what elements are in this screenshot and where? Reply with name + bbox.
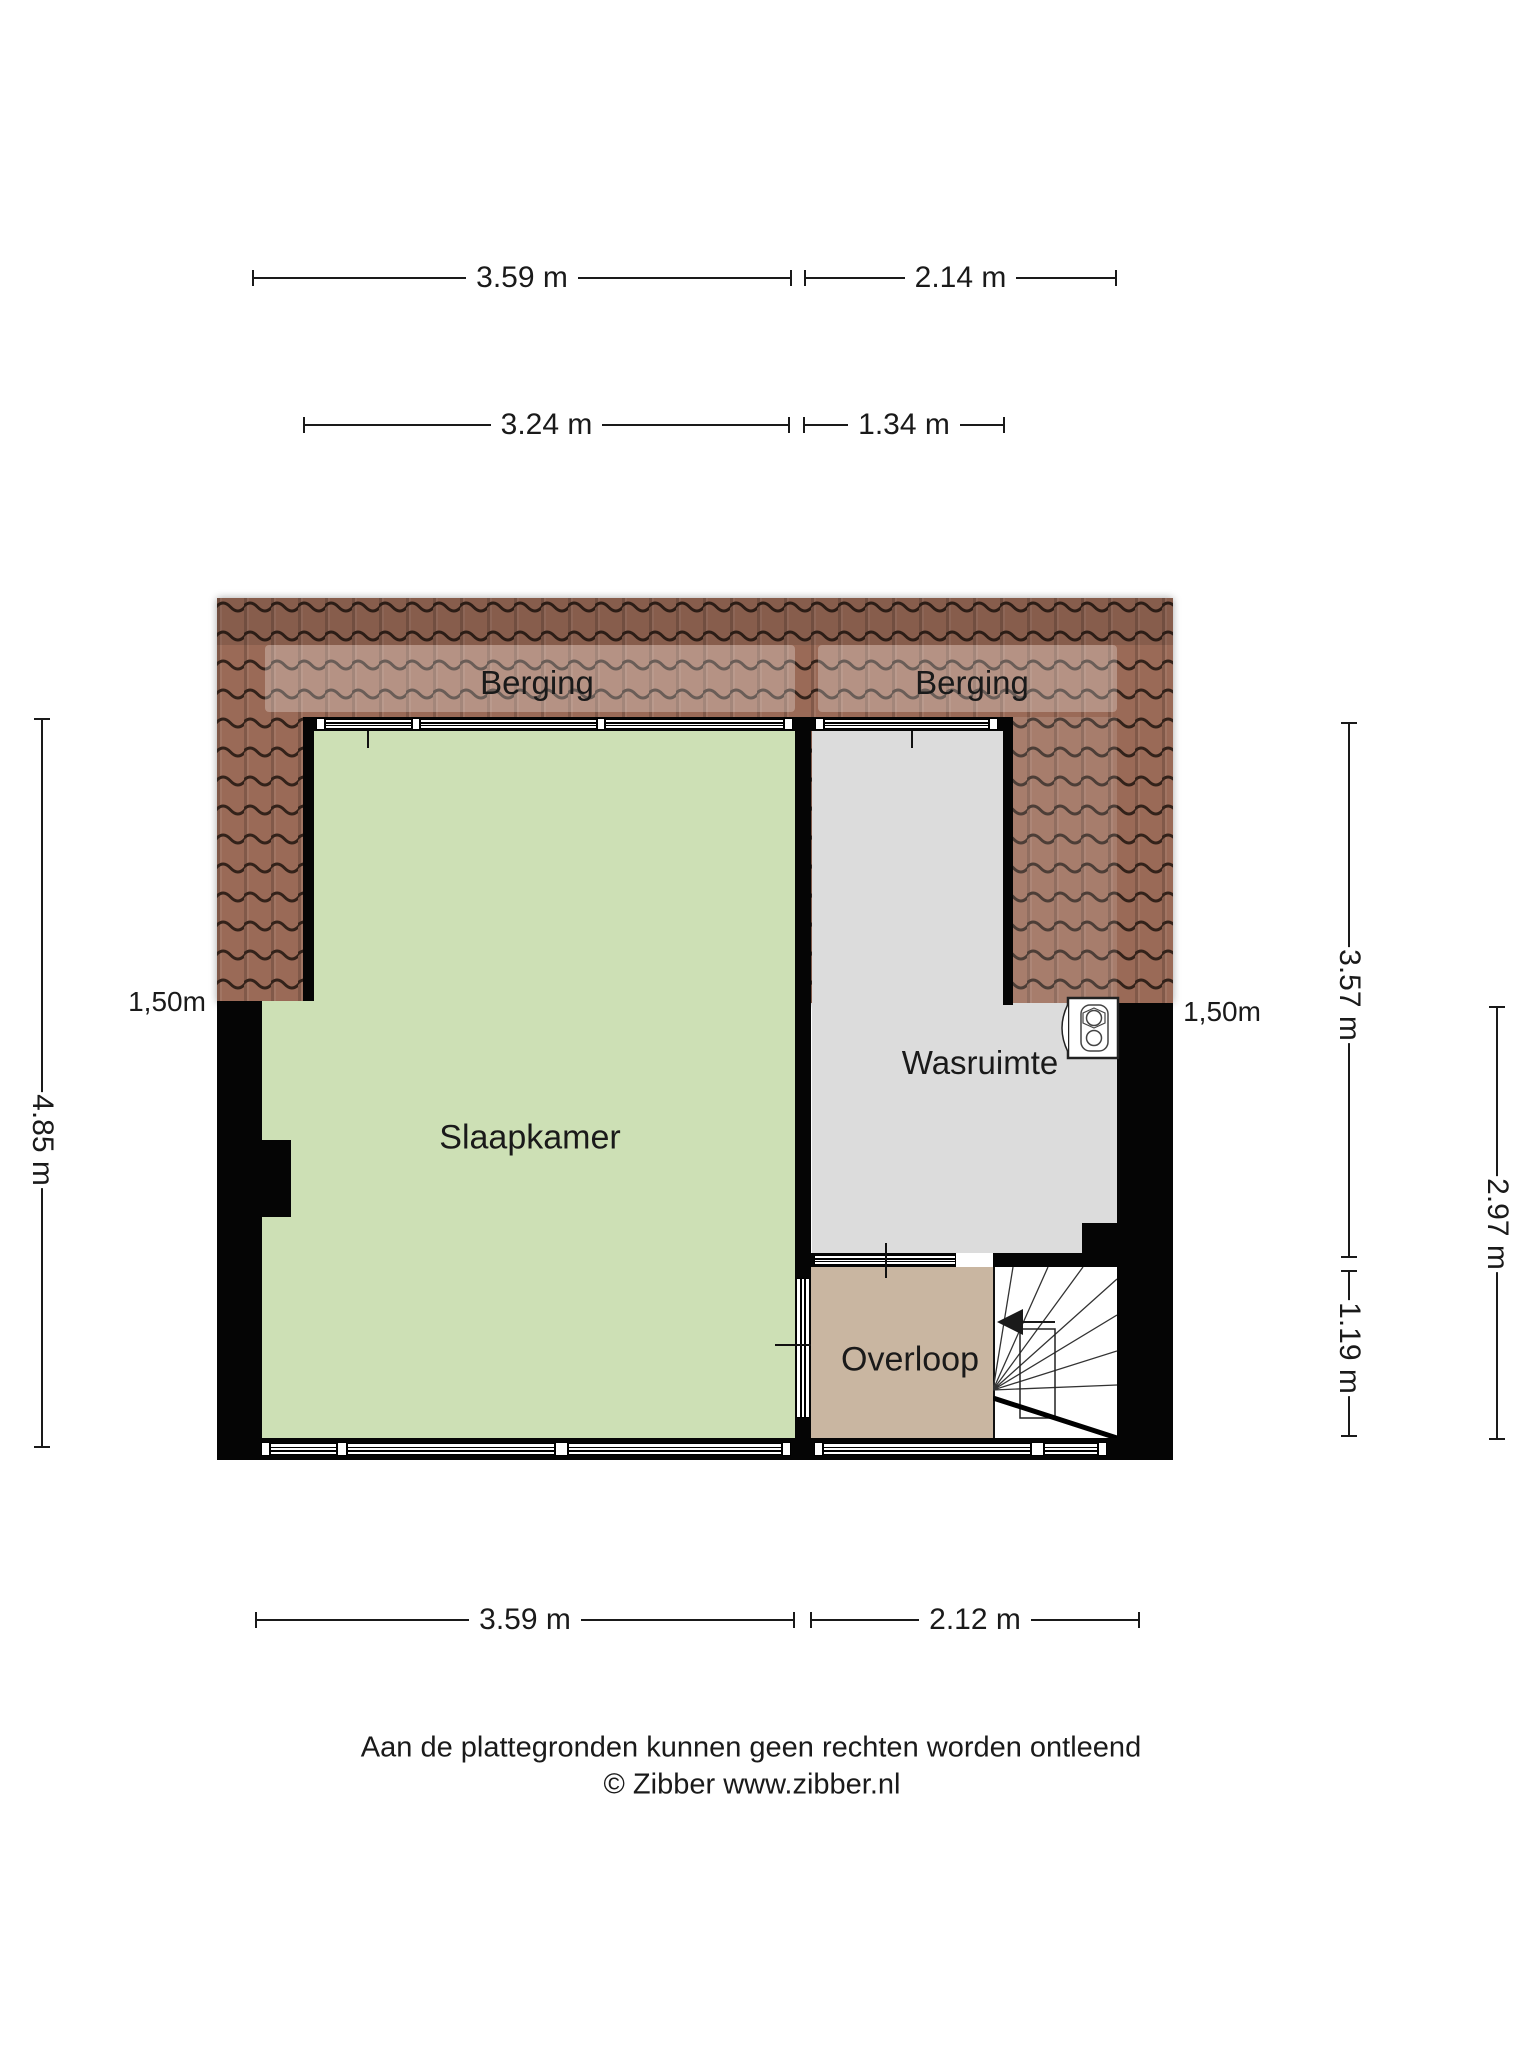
dim-tick bbox=[34, 1446, 50, 1448]
dim-tick bbox=[793, 1612, 795, 1628]
dim-tick bbox=[252, 270, 254, 286]
dim-tick bbox=[34, 718, 50, 720]
window-tick bbox=[367, 731, 369, 748]
window-cap bbox=[782, 1442, 791, 1456]
dim-tick bbox=[255, 1612, 257, 1628]
knee-wall-label-right: 1,50m bbox=[1183, 996, 1261, 1028]
window-cap bbox=[989, 718, 998, 730]
room-label-berging-left: Berging bbox=[480, 664, 594, 702]
window-slaapkamer-overloop bbox=[796, 1278, 810, 1418]
dim-tick bbox=[303, 417, 305, 433]
dim-line bbox=[303, 424, 790, 426]
left-exterior-wall bbox=[217, 1001, 262, 1460]
window-cap bbox=[555, 1442, 568, 1456]
roof-ridge-shade bbox=[217, 598, 1173, 645]
window-top-4 bbox=[824, 719, 989, 729]
slaapkamer-floor-extension bbox=[262, 1001, 314, 1443]
dim-tick bbox=[1341, 722, 1357, 724]
window-tick bbox=[885, 1243, 887, 1278]
dim-tick bbox=[790, 270, 792, 286]
window-cap bbox=[814, 1442, 823, 1456]
window-cap bbox=[316, 718, 325, 730]
dim-line bbox=[803, 424, 1005, 426]
wasruimte-floor-lower-2 bbox=[812, 1223, 1082, 1257]
room-label-wasruimte: Wasruimte bbox=[902, 1044, 1058, 1082]
left-knee-wall bbox=[303, 731, 314, 1001]
dim-line bbox=[41, 718, 43, 1448]
dim-tick bbox=[803, 417, 805, 433]
disclaimer-text: Aan de plattegronden kunnen geen rechten… bbox=[361, 1732, 1141, 1765]
window-tick bbox=[911, 731, 913, 748]
window-tick bbox=[775, 1344, 811, 1346]
window-top-3 bbox=[605, 719, 784, 729]
window-cap bbox=[784, 718, 793, 730]
dim-tick bbox=[1489, 1438, 1505, 1440]
dim-tick bbox=[1341, 1435, 1357, 1437]
dim-tick bbox=[1341, 1270, 1357, 1272]
knee-wall-label-left: 1,50m bbox=[128, 986, 206, 1018]
dim-tick bbox=[788, 417, 790, 433]
window-bottom-4 bbox=[823, 1443, 1031, 1455]
window-cap bbox=[261, 1442, 270, 1456]
middle-wall bbox=[795, 731, 811, 1253]
room-label-overloop: Overloop bbox=[841, 1341, 979, 1380]
dim-tick bbox=[1003, 417, 1005, 433]
window-cap bbox=[1098, 1442, 1107, 1456]
dim-line bbox=[810, 1619, 1140, 1621]
window-bottom-5 bbox=[1044, 1443, 1098, 1455]
dim-tick bbox=[1115, 270, 1117, 286]
stairs bbox=[993, 1267, 1117, 1438]
window-bottom-1 bbox=[270, 1443, 337, 1455]
dim-tick bbox=[1138, 1612, 1140, 1628]
room-label-berging-right: Berging bbox=[915, 664, 1029, 702]
dim-tick bbox=[1489, 1006, 1505, 1008]
dim-line bbox=[804, 277, 1117, 279]
dim-tick bbox=[1341, 1256, 1357, 1258]
dim-tick bbox=[804, 270, 806, 286]
slaapkamer-floor bbox=[314, 731, 795, 1443]
copyright-text: © Zibber www.zibber.nl bbox=[604, 1769, 901, 1802]
door-opening-wasruimte bbox=[956, 1253, 993, 1267]
right-exterior-wall bbox=[1117, 1003, 1173, 1460]
window-cap bbox=[412, 718, 420, 730]
right-knee-wall bbox=[1003, 731, 1013, 1005]
window-bottom-3 bbox=[568, 1443, 782, 1455]
floorplan-page: Berging Berging Slaapkamer Wasruimte Ove… bbox=[0, 0, 1536, 2048]
berging-right-floor-shade bbox=[1013, 717, 1117, 1003]
dim-line bbox=[255, 1619, 795, 1621]
left-wall-notch bbox=[262, 1140, 291, 1217]
window-cap bbox=[1031, 1442, 1044, 1456]
washing-machine-icon bbox=[1056, 996, 1120, 1062]
wasruimte-step-wall bbox=[1082, 1223, 1117, 1267]
wasruimte-floor-upper bbox=[812, 731, 1003, 1003]
window-cap bbox=[337, 1442, 347, 1456]
room-label-slaapkamer: Slaapkamer bbox=[439, 1119, 620, 1158]
dim-tick bbox=[810, 1612, 812, 1628]
window-top-1 bbox=[325, 719, 412, 729]
window-bottom-2 bbox=[347, 1443, 555, 1455]
dim-line bbox=[252, 277, 792, 279]
window-top-2 bbox=[420, 719, 597, 729]
window-cap bbox=[815, 718, 824, 730]
window-cap bbox=[597, 718, 605, 730]
